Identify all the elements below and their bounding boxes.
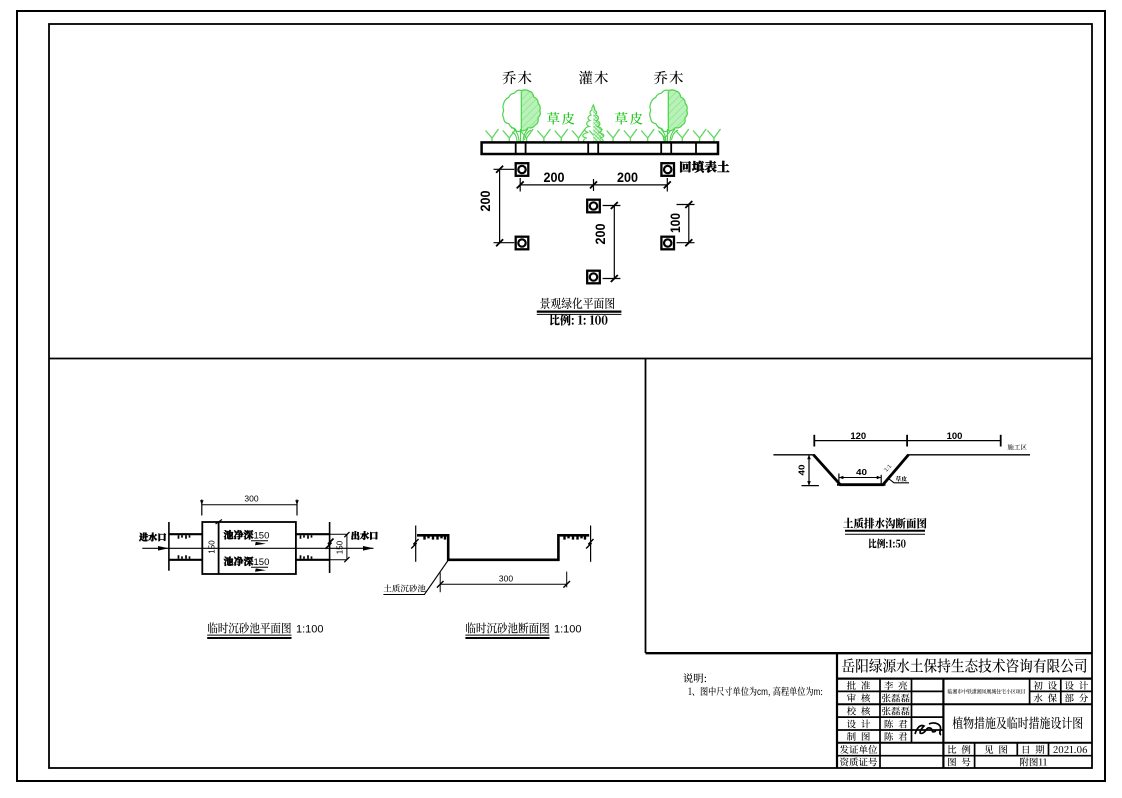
svg-text:200: 200 [593,224,608,245]
svg-text:200: 200 [617,170,638,185]
svg-text:300: 300 [499,574,513,584]
svg-text:1:100: 1:100 [554,624,582,636]
svg-text:灌木: 灌木 [579,67,610,88]
svg-text:部 分: 部 分 [1065,691,1089,705]
svg-text:乔木: 乔木 [502,67,533,88]
svg-text:草皮: 草皮 [615,108,645,128]
svg-text:150: 150 [254,557,270,568]
svg-text:土质沉砂池: 土质沉砂池 [383,583,426,595]
svg-text:100: 100 [947,431,963,442]
svg-text:临湘市中铁潇湘凤凰城住宅小区项目: 临湘市中铁潇湘凤凰城住宅小区项目 [948,688,1026,696]
svg-text:200: 200 [478,191,493,212]
svg-text:150: 150 [336,540,345,554]
svg-text:150: 150 [208,540,217,554]
svg-text:草皮: 草皮 [547,108,577,128]
svg-text:岳阳绿源水土保持生态技术咨询有限公司: 岳阳绿源水土保持生态技术咨询有限公司 [842,655,1088,677]
svg-text:出水口: 出水口 [351,528,379,542]
svg-text:2021.06: 2021.06 [1053,742,1088,756]
svg-text:比例: 1: 100: 比例: 1: 100 [549,312,608,329]
svg-text:乔木: 乔木 [654,67,685,88]
svg-text:植物措施及临时措施设计图: 植物措施及临时措施设计图 [952,712,1083,732]
svg-text:资质证号: 资质证号 [840,755,879,769]
svg-text:100: 100 [668,213,683,233]
svg-text:回填表土: 回填表土 [679,158,730,176]
svg-text:审 核: 审 核 [847,691,871,705]
svg-text:临时沉砂池平面图: 临时沉砂池平面图 [207,620,291,637]
svg-text:40: 40 [797,464,807,475]
svg-text:张磊磊: 张磊磊 [881,691,910,705]
svg-text:40: 40 [856,467,867,477]
svg-text:土质排水沟断面图: 土质排水沟断面图 [843,516,927,532]
svg-text:见 图: 见 图 [984,742,1008,756]
svg-text:1、图中尺寸单位为cm, 高程单位为m:: 1、图中尺寸单位为cm, 高程单位为m: [688,683,823,698]
svg-text:120: 120 [850,431,866,442]
svg-text:草皮: 草皮 [896,474,908,483]
svg-text:池净深: 池净深 [224,527,254,542]
svg-text:景观绿化平面图: 景观绿化平面图 [540,294,616,312]
svg-text:150: 150 [254,531,270,542]
svg-text:1:100: 1:100 [296,624,324,636]
svg-text:施工区: 施工区 [1007,443,1027,452]
svg-text:比例:1:50: 比例:1:50 [868,537,906,552]
svg-text:水 保: 水 保 [1033,691,1057,705]
svg-text:临时沉砂池断面图: 临时沉砂池断面图 [465,620,549,637]
svg-text:池净深: 池净深 [224,553,254,568]
svg-text:200: 200 [544,170,565,185]
svg-text:300: 300 [244,494,258,504]
svg-text:陈 君: 陈 君 [884,729,908,743]
svg-text:图 号: 图 号 [947,755,971,769]
svg-text:进水口: 进水口 [139,530,167,544]
svg-text:附图11: 附图11 [1019,755,1047,769]
